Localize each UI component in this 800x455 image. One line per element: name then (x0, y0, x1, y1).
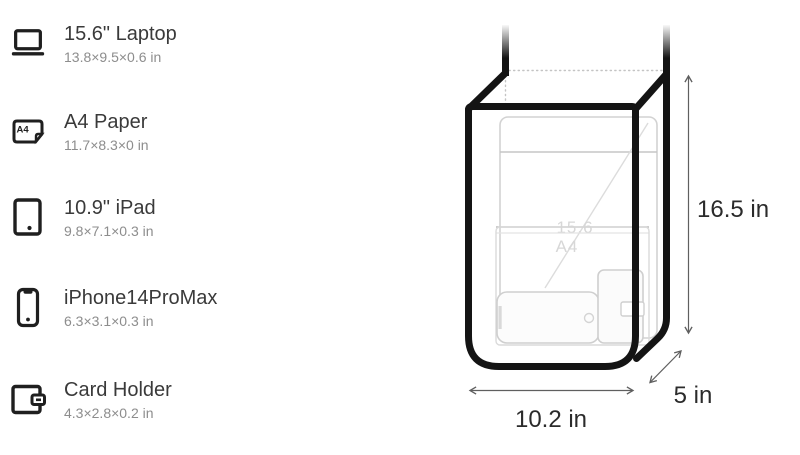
a4-paper-icon: A4 (8, 112, 48, 152)
bag-size-diagram: 15.6 A4 16.5 in 10.2 in 5 in (430, 0, 800, 455)
ipad-icon (8, 197, 48, 239)
laptop-icon (8, 24, 48, 64)
page: { "legend": { "items": [ { "icon": "lapt… (0, 0, 800, 455)
legend-item-title: 15.6" Laptop (64, 22, 177, 46)
legend-item-title: iPhone14ProMax (64, 286, 217, 310)
width-dimension-label: 10.2 in (515, 406, 587, 433)
legend-item-a4-paper: A4 A4 Paper 11.7×8.3×0 in (8, 110, 149, 154)
legend: 15.6" Laptop 13.8×9.5×0.6 in A4 A4 Paper… (8, 0, 288, 455)
bag-straps (506, 25, 667, 76)
legend-item-dimensions: 11.7×8.3×0 in (64, 137, 149, 154)
ghost-a4-label: A4 (556, 237, 579, 256)
depth-arrow (650, 351, 681, 383)
legend-item-iphone: iPhone14ProMax 6.3×3.1×0.3 in (8, 286, 217, 330)
legend-item-ipad: 10.9" iPad 9.8×7.1×0.3 in (8, 196, 156, 240)
legend-item-dimensions: 6.3×3.1×0.3 in (64, 313, 217, 330)
ghost-iphone (497, 292, 599, 343)
legend-item-title: Card Holder (64, 378, 172, 402)
legend-item-dimensions: 13.8×9.5×0.6 in (64, 49, 177, 66)
svg-text:A4: A4 (17, 125, 30, 136)
height-dimension-label: 16.5 in (697, 196, 769, 223)
legend-item-dimensions: 4.3×2.8×0.2 in (64, 405, 172, 422)
legend-item-title: A4 Paper (64, 110, 149, 134)
depth-dimension-label: 5 in (674, 382, 713, 409)
iphone-icon (8, 286, 48, 330)
legend-item-card-holder: Card Holder 4.3×2.8×0.2 in (8, 378, 172, 422)
card-holder-icon (8, 380, 48, 420)
legend-item-laptop: 15.6" Laptop 13.8×9.5×0.6 in (8, 22, 177, 66)
legend-item-dimensions: 9.8×7.1×0.3 in (64, 223, 156, 240)
legend-item-title: 10.9" iPad (64, 196, 156, 220)
